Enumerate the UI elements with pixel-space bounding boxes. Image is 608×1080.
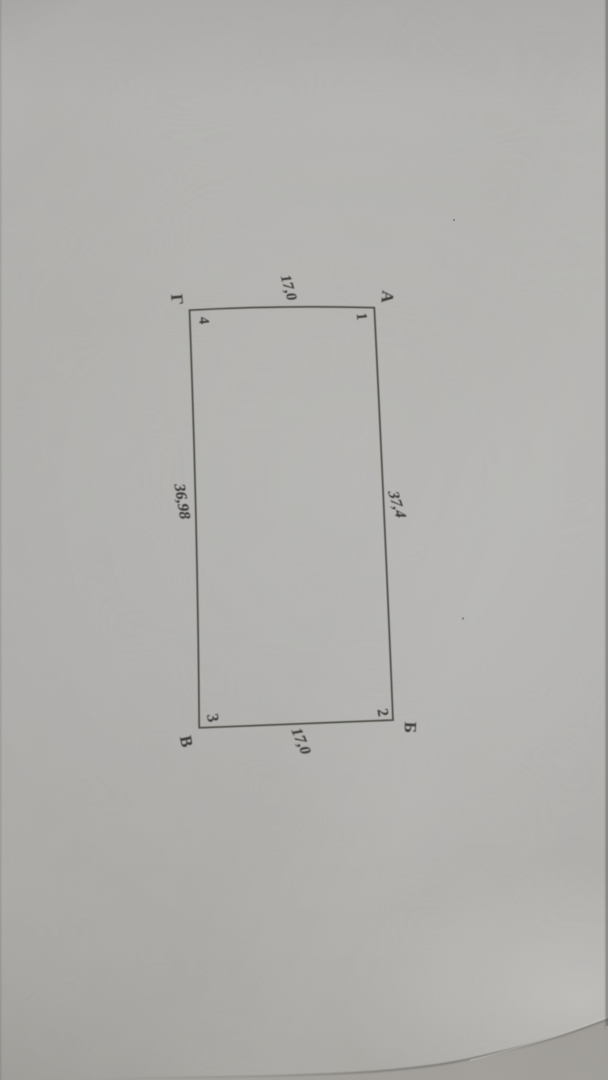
svg-text:А: А <box>377 290 397 305</box>
svg-text:Г: Г <box>167 293 187 305</box>
svg-text:4: 4 <box>195 316 212 325</box>
svg-text:Б: Б <box>401 722 420 734</box>
